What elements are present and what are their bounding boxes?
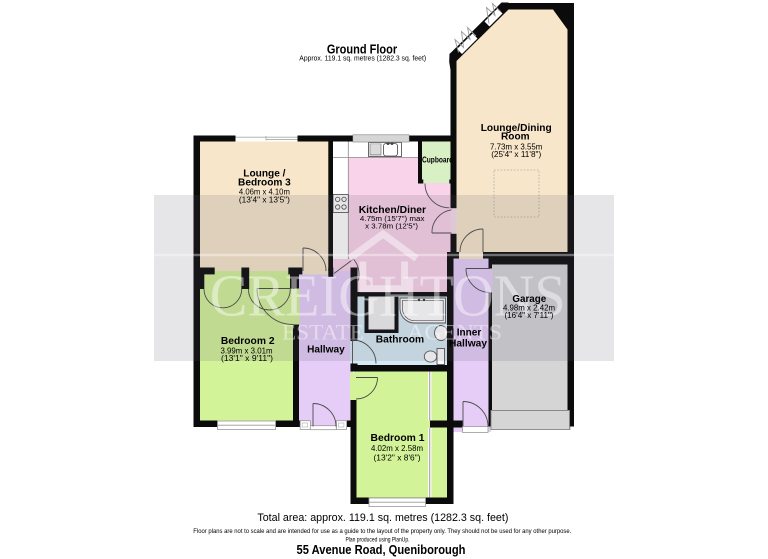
svg-text:Hallway: Hallway — [449, 337, 487, 349]
svg-text:Cupboard: Cupboard — [422, 156, 453, 165]
svg-text:Approx. 119.1 sq. metres (1282: Approx. 119.1 sq. metres (1282.3 sq. fee… — [299, 54, 426, 63]
svg-text:(13'4" x 13'5"): (13'4" x 13'5") — [239, 195, 290, 205]
svg-text:(25'4" x 11'8"): (25'4" x 11'8") — [491, 149, 541, 159]
svg-text:(16'4" x 7'11"): (16'4" x 7'11") — [505, 310, 554, 320]
svg-text:55 Avenue Road, Queniborough: 55 Avenue Road, Queniborough — [297, 542, 466, 557]
svg-text:x 3.78m (12'5"): x 3.78m (12'5") — [365, 222, 418, 231]
svg-text:Total area: approx. 119.1 sq.: Total area: approx. 119.1 sq. metres (12… — [257, 512, 508, 524]
svg-text:(13'1" x 9'11"): (13'1" x 9'11") — [221, 353, 273, 363]
svg-text:4.02m x 2.58m: 4.02m x 2.58m — [371, 443, 423, 453]
svg-text:Hallway: Hallway — [307, 343, 345, 355]
svg-text:(13'2" x 8'6"): (13'2" x 8'6") — [374, 453, 421, 463]
svg-text:ESTATE: ESTATE — [282, 320, 364, 345]
svg-text:Bathroom: Bathroom — [376, 334, 424, 346]
svg-text:Floor plans are not to scale a: Floor plans are not to scale and are int… — [193, 528, 571, 535]
